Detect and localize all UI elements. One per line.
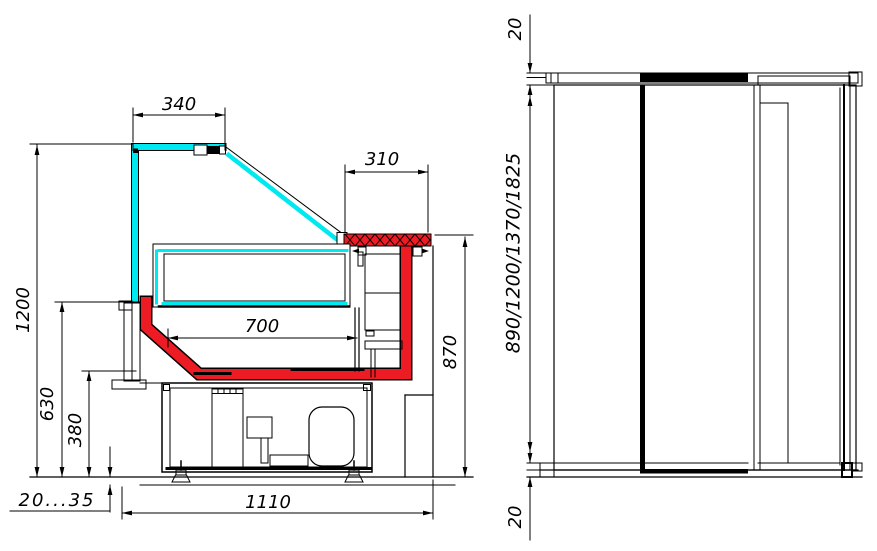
worktop-hatch (344, 234, 431, 246)
dim-label-1110: 1110 (245, 492, 291, 513)
slanted-glass-edge (226, 147, 347, 237)
glass-corner-joint (133, 149, 138, 154)
worktop-group (344, 234, 431, 256)
dim-label-length-options: 890/1200/1370/1825 (503, 153, 525, 354)
front-panel (112, 301, 162, 389)
side-divider-post (640, 85, 645, 470)
dim-label-20-35: 20...35 (19, 490, 96, 511)
side-bottom-strip (527, 463, 862, 477)
dim-label-340: 340 (162, 94, 196, 115)
section-view (30, 144, 473, 486)
canopy-lamp-housing (194, 145, 207, 155)
worktop-fastener-right (413, 247, 422, 256)
slanted-glass (229, 155, 343, 244)
dim-label-20-bottom: 20 (505, 506, 526, 529)
condenser (212, 389, 243, 467)
dim-label-630: 630 (37, 387, 58, 421)
technical-drawing: 340 310 700 1110 1200 630 380 870 20...3… (0, 0, 877, 551)
side-view (527, 72, 862, 477)
floor (30, 477, 473, 485)
dim-label-870: 870 (440, 335, 461, 369)
drawing-canvas: 340 310 700 1110 1200 630 380 870 20...3… (0, 0, 877, 551)
dim-label-1200: 1200 (13, 287, 34, 333)
side-dimensions: 20 890/1200/1370/1825 20 (503, 15, 555, 540)
dim-label-20-top: 20 (505, 18, 526, 41)
dim-label-700: 700 (245, 316, 279, 337)
dim-label-310: 310 (365, 149, 399, 170)
machine-compartment (162, 383, 372, 472)
front-glass (132, 144, 139, 303)
display-tray (153, 244, 350, 307)
side-body (554, 85, 856, 470)
dim-label-380: 380 (65, 413, 86, 447)
compressor (309, 407, 354, 466)
starter-relay (247, 417, 272, 438)
canopy-hinge (208, 146, 220, 154)
side-top-strip (546, 72, 862, 86)
rear-column (355, 252, 402, 377)
